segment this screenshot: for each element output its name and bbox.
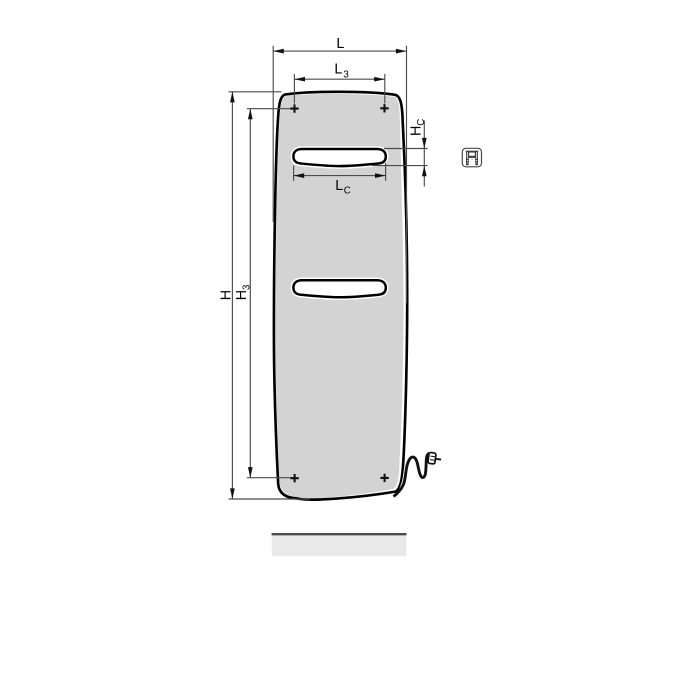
svg-text:C: C: [416, 119, 427, 126]
svg-text:H: H: [408, 126, 424, 136]
svg-text:H: H: [234, 290, 250, 300]
svg-text:L: L: [335, 178, 343, 194]
svg-text:C: C: [344, 186, 351, 197]
svg-text:3: 3: [343, 69, 348, 80]
svg-text:H: H: [218, 290, 234, 300]
svg-text:L: L: [336, 36, 344, 52]
svg-text:L: L: [334, 62, 342, 78]
svg-text:3: 3: [242, 285, 253, 290]
